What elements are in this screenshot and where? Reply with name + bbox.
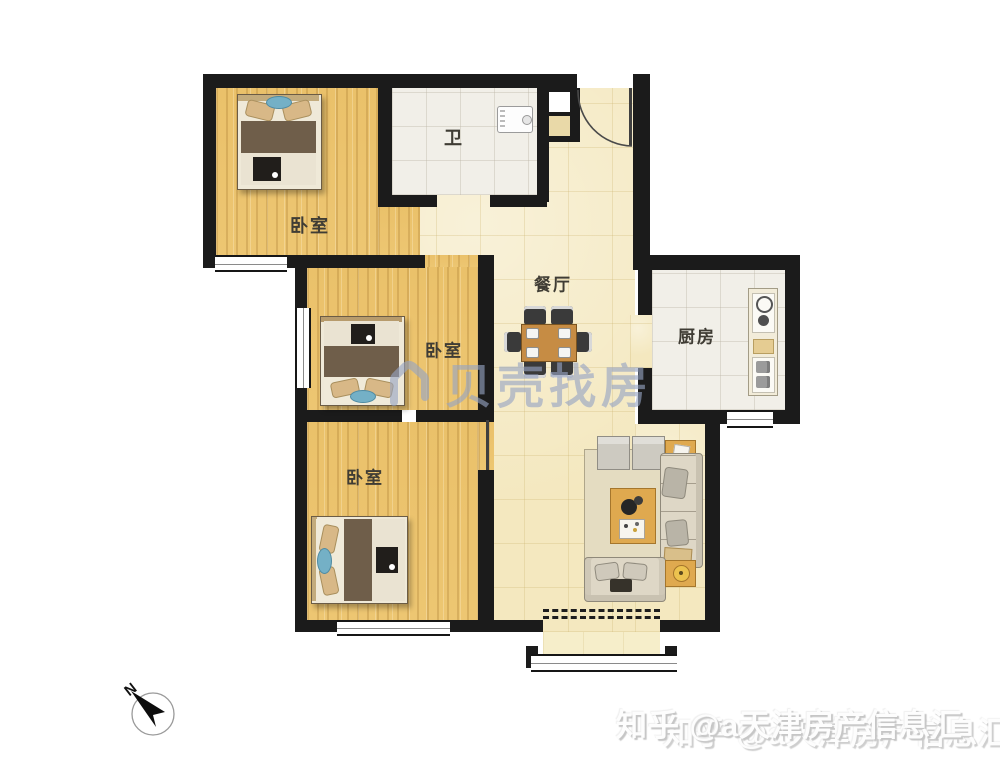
lamp-finial [679, 571, 683, 575]
wall-bedroom-bottom-right [478, 470, 494, 632]
tv-panel [376, 547, 398, 573]
room-label-bedroom-top: 卧室 [290, 212, 330, 238]
tray [619, 519, 645, 539]
north-compass: N [120, 676, 186, 746]
window-bedroom-middle [295, 308, 311, 388]
zhihu-watermark: 知乎 @a天津房产信息汇 [616, 700, 963, 745]
washing-machine [497, 106, 533, 133]
wall-kitchen-left-a [638, 255, 652, 315]
window-kitchen [727, 410, 773, 428]
window-bedroom-bottom [337, 620, 450, 636]
tray-item [635, 522, 639, 526]
room-label-kitchen: 厨房 [678, 323, 716, 348]
wall-bathroom-bottom-a [392, 195, 437, 207]
sink-panel [752, 293, 775, 333]
wall-bedrooms-left-b [295, 388, 307, 632]
balcony-dashed-line-1 [543, 609, 660, 612]
tray-item [624, 524, 628, 528]
wall-bedrooms-left-a [295, 255, 307, 308]
burner [756, 361, 770, 373]
wall-kitchen-bottom-a [650, 410, 727, 424]
bedroom-top-doorway-floor [378, 207, 420, 255]
brand-watermark-text: 贝壳找房 [445, 348, 653, 417]
wall-kitchen-bottom-b [773, 410, 800, 424]
bed-blanket [241, 121, 316, 157]
wall-bedroom-top-bottom-a [203, 255, 215, 268]
bed-bottom-bedroom [311, 516, 408, 604]
wall-bottom-a [295, 620, 337, 632]
tv-panel [351, 324, 375, 344]
window-bedroom-top [215, 255, 287, 272]
bedroom-middle-doorway-floor [418, 255, 478, 267]
place-setting [558, 328, 571, 339]
washer-controls [500, 110, 505, 128]
brand-logo-house-icon [383, 356, 435, 410]
floor-plan-canvas: 卧室 卫 餐厅 厨房 卧室 卧室 贝壳找房 N 知乎 @a天津房产信息汇 知乎 … [0, 0, 1000, 767]
dining-chair [524, 306, 546, 325]
bed-accent-cushion [266, 96, 292, 109]
sofa-blanket [610, 579, 632, 592]
tv-panel [253, 157, 281, 181]
bed-top-bedroom [237, 94, 322, 190]
balcony-dashed-line-2 [543, 616, 660, 619]
wall-bottom-b [450, 620, 543, 632]
wall-living-right [705, 424, 720, 632]
armchair [597, 436, 630, 470]
wall-left-outer [203, 74, 216, 268]
window-balcony [531, 654, 677, 672]
tray-item [633, 528, 637, 532]
bedroom-bottom-door-leaf [486, 420, 489, 470]
balcony-floor [543, 632, 660, 656]
bed-accent-cushion [350, 390, 376, 403]
bed-blanket [344, 519, 372, 601]
entry-door-arc [540, 70, 660, 180]
sofa-cushion [661, 466, 689, 499]
sofa-bottom [584, 557, 666, 602]
stove-panel [752, 357, 775, 393]
kitchen-counter [748, 288, 778, 396]
washer-knob [522, 115, 532, 125]
coffee-table [610, 488, 656, 544]
sink-drain [758, 315, 769, 326]
room-label-bedroom-bottom: 卧室 [346, 464, 384, 489]
decor-bowl-small [634, 496, 643, 505]
wall-top [203, 74, 577, 88]
place-setting [526, 328, 539, 339]
sofa-cushion [665, 519, 690, 547]
sink-basin [756, 296, 773, 313]
wall-kitchen-right [785, 255, 800, 424]
wall-bedroom-top-bottom-b [287, 255, 425, 268]
burner [756, 376, 770, 388]
bed-accent-cushion [317, 548, 332, 574]
bathroom-floor [392, 88, 537, 195]
wall-bathroom-left [378, 88, 392, 207]
wall-kitchen-top [650, 255, 800, 270]
room-label-bathroom: 卫 [444, 124, 464, 150]
side-table [665, 560, 696, 587]
compass-arrow-icon [131, 691, 165, 727]
counter-appliance [753, 339, 774, 354]
dining-chair [551, 306, 573, 325]
brand-watermark: 贝壳找房 [383, 348, 653, 417]
room-label-dining: 餐厅 [534, 271, 572, 296]
